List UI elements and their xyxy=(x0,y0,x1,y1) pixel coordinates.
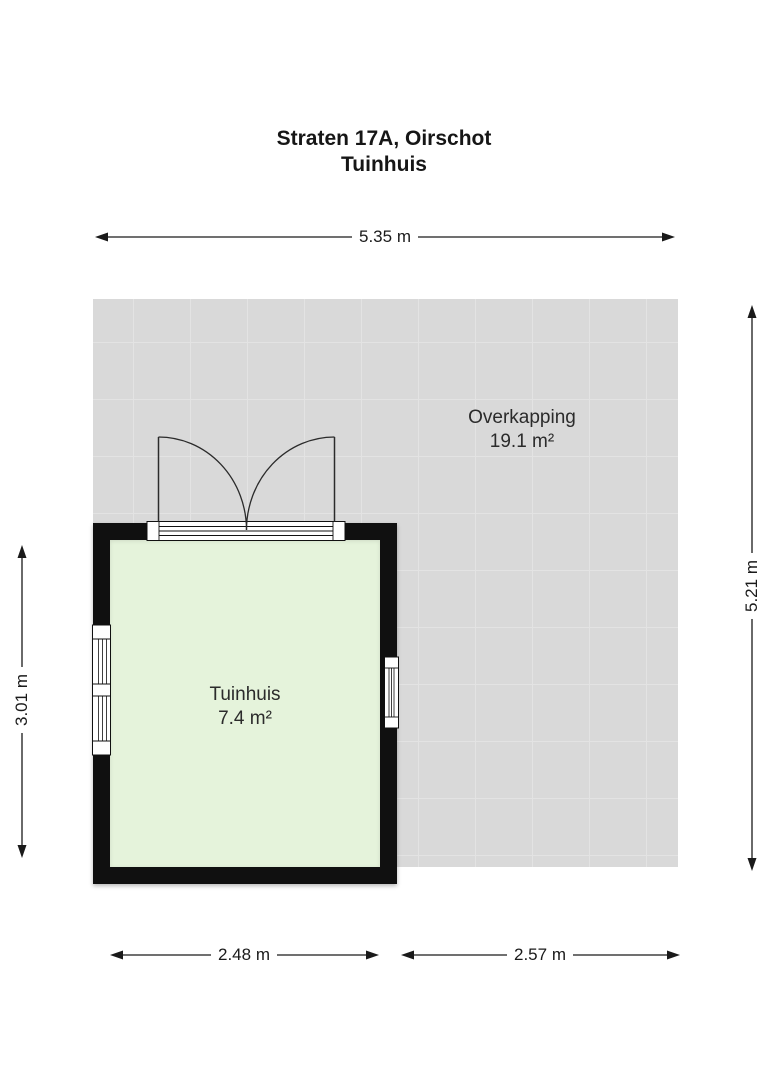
area-tuinhuis-name: Tuinhuis xyxy=(125,683,365,707)
window-left xyxy=(93,625,111,755)
dimension-label-top: 5.35 m xyxy=(352,227,418,247)
door-leaf-left xyxy=(159,437,247,530)
window-right xyxy=(385,657,399,728)
area-overkapping-label: Overkapping 19.1 m² xyxy=(402,406,642,454)
area-overkapping-name: Overkapping xyxy=(402,406,642,430)
dimension-label-bottom-right: 2.57 m xyxy=(507,945,573,965)
area-tuinhuis-size: 7.4 m² xyxy=(125,707,365,731)
dimension-label-bottom-left: 2.48 m xyxy=(211,945,277,965)
area-overkapping-size: 19.1 m² xyxy=(402,430,642,454)
double-door xyxy=(147,437,345,541)
plan-vector-overlay xyxy=(0,0,768,1086)
dimension-label-right: 5.21 m xyxy=(742,553,762,619)
dimension-label-left: 3.01 m xyxy=(12,667,32,733)
area-tuinhuis-label: Tuinhuis 7.4 m² xyxy=(125,683,365,731)
door-leaf-right xyxy=(247,437,335,530)
floorplan-canvas: Straten 17A, Oirschot Tuinhuis xyxy=(0,0,768,1086)
